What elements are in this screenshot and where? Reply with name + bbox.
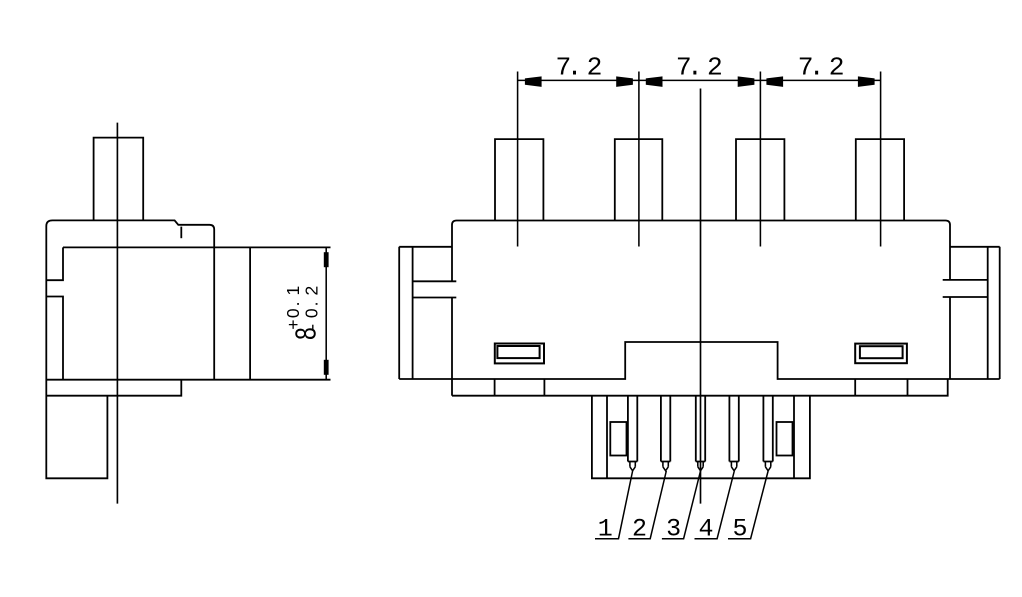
- svg-text:7.2: 7.2: [676, 53, 723, 83]
- svg-text:1: 1: [598, 515, 613, 544]
- svg-text:-0.2: -0.2: [302, 286, 322, 330]
- svg-text:3: 3: [666, 515, 681, 544]
- svg-text:4: 4: [698, 515, 713, 544]
- svg-text:7.2: 7.2: [556, 53, 603, 83]
- svg-text:7.2: 7.2: [798, 53, 845, 83]
- svg-text:5: 5: [732, 515, 747, 544]
- svg-text:+0.1: +0.1: [283, 286, 303, 330]
- svg-text:2: 2: [632, 515, 647, 544]
